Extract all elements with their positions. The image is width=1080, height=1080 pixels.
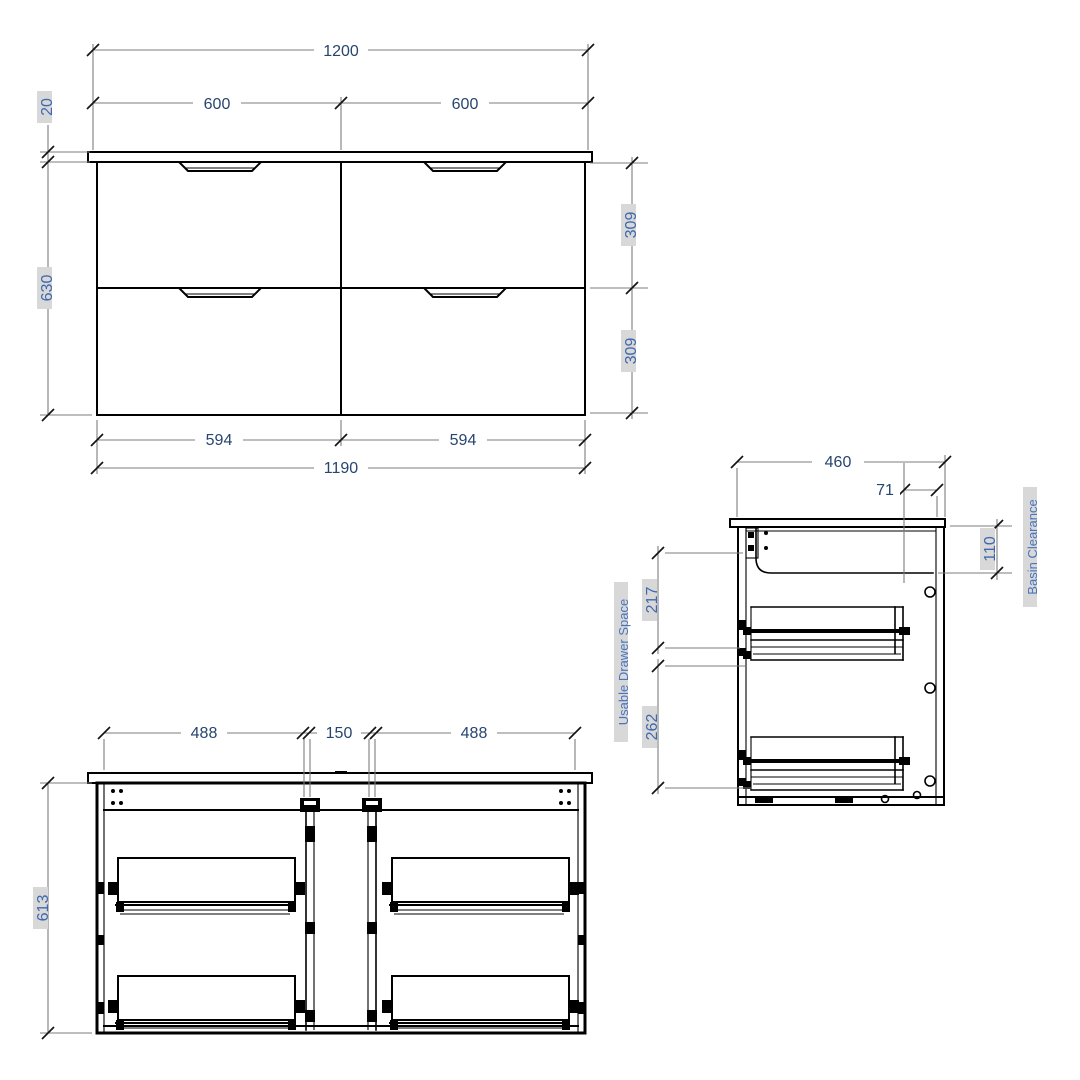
wall-bracket	[746, 528, 768, 558]
dim-drawer-spaces-488-150-488: 488 150 488	[98, 724, 581, 742]
lower-drawer-section	[743, 737, 910, 790]
dim-text-262: 262	[644, 714, 661, 741]
label-usable-drawer-space: Usable Drawer Space	[614, 582, 631, 742]
center-posts	[300, 798, 382, 1030]
benchtop-section	[730, 519, 945, 527]
dim-text-600-left: 600	[204, 96, 231, 113]
dim-text-309-lower: 309	[623, 338, 640, 365]
dim-text-71: 71	[876, 482, 894, 499]
vanity-technical-drawing: 1200 600 600 20 630	[0, 0, 1080, 1080]
dim-text-613: 613	[35, 895, 52, 922]
dim-overall-top-width: 1200	[87, 41, 594, 60]
upper-drawer-section	[743, 607, 910, 660]
handle-notch	[180, 289, 260, 297]
handle-notch	[425, 289, 505, 297]
upper-left-drawer-box	[108, 858, 305, 914]
label-basin-clearance: Basin Clearance	[1023, 487, 1040, 607]
dim-text-217: 217	[644, 587, 661, 614]
dim-text-460: 460	[825, 454, 852, 471]
dim-upper-drawer-space-217: 217	[642, 546, 664, 654]
dim-text-309-upper: 309	[623, 212, 640, 239]
side-view-dimensions: 460 71 110 Basin Clearance	[614, 453, 1040, 794]
internal-view: 488 150 488 613	[33, 724, 592, 1039]
front-view-cabinet	[88, 152, 592, 415]
dim-text-594-left: 594	[206, 432, 233, 449]
dim-lower-drawer-space-262: 262	[642, 659, 664, 794]
dim-benchtop-and-height: 20 630	[37, 91, 56, 421]
dim-text-1190: 1190	[324, 460, 359, 477]
dim-text-110: 110	[982, 536, 999, 562]
screw-points	[111, 789, 571, 805]
dim-depth-460: 460	[731, 453, 951, 471]
carcass	[97, 783, 585, 1033]
internal-view-cabinet	[88, 771, 592, 1033]
dim-text-488-right: 488	[461, 725, 488, 742]
dim-internal-height-613: 613	[33, 777, 54, 1039]
upper-right-drawer-box	[382, 858, 579, 914]
side-view-cabinet	[730, 463, 945, 805]
dim-text-20: 20	[39, 98, 56, 116]
dim-basin-offset-71: 71	[870, 481, 943, 499]
handle-notch	[425, 163, 505, 171]
foot-block	[835, 797, 853, 803]
dim-text-600-right: 600	[452, 96, 479, 113]
lower-left-drawer-box	[108, 976, 305, 1032]
extension-lines	[665, 455, 1012, 788]
basin-clearance-label: Basin Clearance	[1025, 499, 1040, 594]
front-view: 1200 600 600 20 630	[37, 41, 648, 477]
extension-lines	[40, 44, 648, 474]
center-mark	[335, 771, 347, 774]
front-view-dimensions: 1200 600 600 20 630	[37, 41, 648, 477]
foot-block	[755, 797, 773, 803]
dim-text-488-left: 488	[191, 725, 218, 742]
dim-text-630: 630	[39, 275, 56, 302]
basin-profile	[746, 527, 936, 573]
dim-basin-clearance-110: 110	[980, 519, 1003, 580]
side-view: 460 71 110 Basin Clearance	[614, 453, 1040, 805]
handle-notch	[180, 163, 260, 171]
benchtop	[88, 152, 592, 162]
dim-text-594-right: 594	[450, 432, 477, 449]
dim-text-150: 150	[326, 725, 353, 742]
usable-drawer-space-label: Usable Drawer Space	[616, 599, 631, 725]
dim-text-1200: 1200	[323, 43, 359, 60]
drawing-page: 1200 600 600 20 630	[0, 0, 1080, 1080]
internal-view-dimensions: 488 150 488 613	[33, 724, 581, 1039]
dim-cabinet-width-1190: 1190	[91, 459, 591, 477]
lower-right-drawer-box	[382, 976, 579, 1032]
